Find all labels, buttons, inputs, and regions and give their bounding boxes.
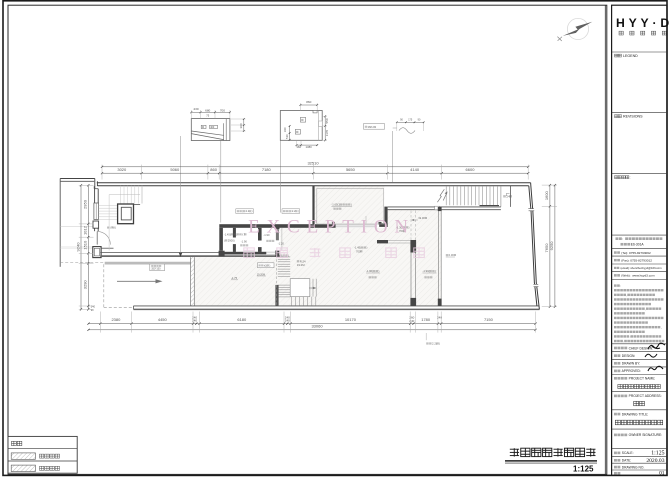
svg-text:6180: 6180 [237,317,247,322]
svg-text:350*150: 350*150 [151,268,161,271]
svg-text:5060: 5060 [170,167,180,172]
svg-text:2380: 2380 [111,317,121,322]
svg-text:368.2M: 368.2M [368,125,377,129]
svg-text:2900): 2900) [228,239,235,243]
svg-text:-1.90(: -1.90( [366,269,373,273]
svg-text:-1.20: -1.20 [278,242,285,246]
svg-text:1380: 1380 [305,145,312,149]
svg-text:1600: 1600 [544,190,549,200]
svg-text:7150: 7150 [484,317,494,322]
svg-text:): ) [379,269,380,273]
svg-text:DRAWING NO.: DRAWING NO. [621,465,645,469]
svg-text:(Web): www.hyyd3.com: (Web): www.hyyd3.com [620,274,655,278]
svg-text:10170: 10170 [345,317,357,322]
svg-text:E6-301A: E6-301A [631,243,645,247]
svg-text:EXCEPTION: EXCEPTION [248,217,415,238]
svg-text:OWNER SIGNATURE:: OWNER SIGNATURE: [628,433,662,437]
svg-text:1780: 1780 [421,317,431,322]
svg-text:1012: 1012 [83,225,88,235]
svg-text:): ) [367,246,368,250]
svg-text:HYY·D: HYY·D [616,16,670,30]
svg-text:700: 700 [220,109,225,113]
svg-text:,: , [661,325,662,329]
svg-text:DRAWN BY:: DRAWN BY: [621,362,640,366]
svg-text:19.2M: 19.2M [297,263,305,267]
svg-text:4140: 4140 [410,167,420,172]
svg-text:160: 160 [296,145,301,149]
svg-text:1170: 1170 [325,129,329,136]
svg-text:(email): shenzhenhyyd@163.com: (email): shenzhenhyyd@163.com [620,266,662,270]
svg-text:1:125: 1:125 [651,450,664,456]
svg-text:-1.65(1: -1.65(1 [331,203,340,207]
svg-text:-1.45(: -1.45( [224,232,231,236]
svg-text:240: 240 [285,319,290,323]
svg-text:REVISIONS: REVISIONS [622,115,643,119]
svg-text:SCALE:: SCALE: [621,451,634,455]
svg-text:): ) [351,203,352,207]
svg-text:-1.90: -1.90 [241,239,248,243]
svg-text::: : [622,237,625,241]
svg-text:4450: 4450 [158,317,168,322]
svg-text:390: 390 [239,123,243,128]
svg-text:340: 340 [283,127,287,132]
svg-text:APPROVED:: APPROVED: [621,369,641,373]
svg-text:(Fax): 0755-82793012: (Fax): 0755-82793012 [620,258,652,262]
svg-text:430: 430 [193,107,198,111]
svg-text:0.30M: 0.30M [449,253,457,257]
svg-text:6600: 6600 [466,167,476,172]
svg-text:3290: 3290 [83,280,88,290]
svg-text:510: 510 [285,134,289,139]
svg-text:DATE:: DATE: [621,459,631,463]
svg-text:-1.75: -1.75 [231,276,238,280]
svg-text:860: 860 [210,167,217,172]
svg-text:5650: 5650 [346,167,356,172]
svg-text:): ) [435,269,436,273]
svg-text:33060: 33060 [311,323,323,328]
svg-text:): ) [298,209,299,213]
svg-text:DESIGN:: DESIGN: [621,354,636,358]
svg-text::: : [620,284,621,288]
svg-text:19.30M: 19.30M [418,216,428,220]
svg-text:2950: 2950 [83,199,88,209]
svg-text:): ) [439,342,440,346]
svg-text:(Tel): 0755-82793062: (Tel): 0755-82793062 [620,251,651,255]
svg-text:PROJECT ADDRESS:: PROJECT ADDRESS: [628,394,662,398]
svg-text:7180: 7180 [262,167,272,172]
svg-text:550: 550 [325,118,329,123]
svg-text:1:125: 1:125 [573,465,594,474]
svg-text::: : [629,176,630,180]
svg-text:-1.45(: -1.45( [354,246,361,250]
svg-text:2.2(: 2.2( [432,342,437,346]
svg-text:LEGEND: LEGEND [622,54,638,58]
svg-text:400: 400 [210,126,215,129]
svg-text:3020: 3020 [117,167,127,172]
svg-text:175: 175 [408,118,413,121]
svg-text:9250: 9250 [549,241,554,251]
svg-text:01: 01 [659,471,665,477]
svg-text:-1.90(: -1.90( [423,269,430,273]
svg-text:9240: 9240 [75,242,80,252]
svg-text:PROJECT NAME:: PROJECT NAME: [628,377,656,381]
svg-text:860: 860 [306,100,311,104]
svg-text:): ) [115,226,116,230]
svg-text:2020.03: 2020.03 [646,458,664,464]
svg-text:1510: 1510 [83,240,88,250]
svg-text:680: 680 [205,109,210,113]
svg-text:): ) [252,209,253,213]
svg-text:DRAWING TITLE:: DRAWING TITLE: [621,412,649,416]
